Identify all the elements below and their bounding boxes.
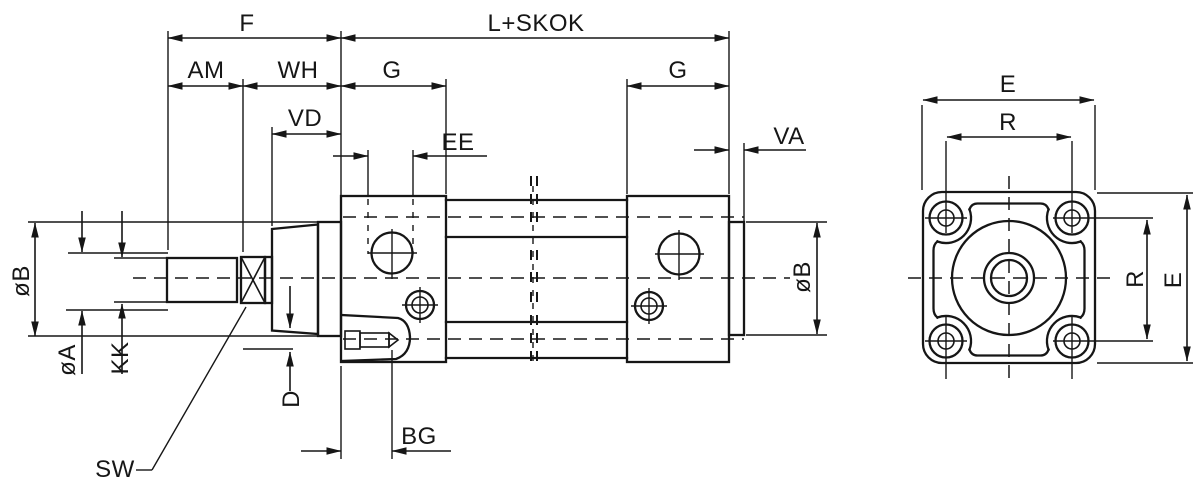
rear-head [627,196,744,362]
dim-label-r-top: R [999,109,1017,136]
break-ticks [531,176,537,361]
technical-drawing-page: F L+SKOK AM WH G G VD EE VA øB øB øA KK … [0,0,1200,494]
sw-leader [136,307,246,470]
dim-label-e-top: E [1000,71,1017,98]
end-view-labels: E R R E [999,71,1187,288]
cushion-housing [342,315,410,361]
dim-label-wh: WH [278,57,319,84]
bolt-boss-arc [937,209,971,243]
dim-label-ee: EE [441,129,474,156]
dim-label-g-rear: G [668,57,687,84]
piston-rod [66,253,272,310]
dim-label-r-side: R [1122,270,1149,288]
front-head [341,196,446,362]
end-view: E R R E [908,71,1193,380]
extension-lines [28,31,827,459]
cushion-screw-tip [389,333,398,347]
front-mount-boss [272,222,341,336]
dim-label-d: D [278,390,305,408]
cushion-screw-head [345,331,360,349]
rod-thread-section [167,258,237,302]
bolt-boss-arc [1047,209,1081,243]
dim-label-g-front: G [382,57,401,84]
dim-label-am: AM [188,57,225,84]
dim-label-dia-b-rear: øB [789,261,816,293]
bolt-boss-arc [1047,316,1081,350]
dim-label-bg: BG [401,423,437,450]
end-view-centerlines [908,176,1112,380]
cushion-screw [342,315,410,361]
dim-label-e-side: E [1160,272,1187,289]
dim-label-f: F [239,10,254,37]
bolt-boss-arc [937,316,971,350]
cylinder-dimension-drawing: F L+SKOK AM WH G G VD EE VA øB øB øA KK … [0,0,1200,494]
dim-label-dia-a: øA [54,344,81,376]
dim-label-l-skok: L+SKOK [487,10,584,37]
side-view: F L+SKOK AM WH G G VD EE VA øB øB øA KK … [8,10,827,483]
cushion-screw-body [360,333,389,347]
dim-label-va: VA [773,123,804,150]
wrench-flats [241,257,265,303]
pilot-spigot [318,222,341,336]
dim-label-dia-b-front: øB [8,265,35,297]
rear-head-body [627,196,729,362]
boss-cone [272,225,318,335]
dim-label-sw: SW [95,456,135,483]
cylinder-bore-circle [952,221,1066,335]
dim-label-kk: KK [107,341,134,374]
dim-label-vd: VD [288,105,322,132]
